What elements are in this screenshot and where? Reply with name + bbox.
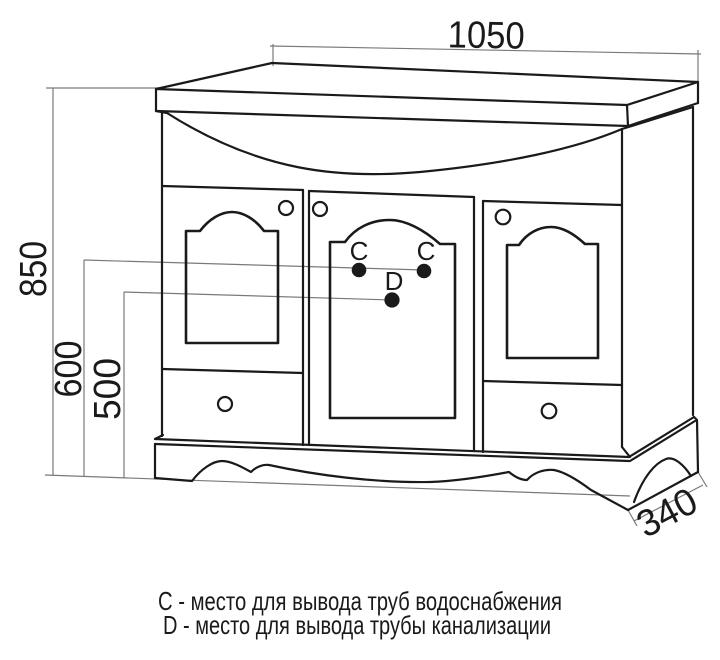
floor-line [45, 475, 630, 496]
drawing-canvas: C C D 1050 850 600 500 340 C - место для… [0, 0, 720, 660]
countertop [156, 63, 698, 126]
vanity-technical-drawing: C C D 1050 850 600 500 340 C - место для… [0, 0, 720, 660]
left-door-panel [186, 212, 278, 343]
plinth-molding-top [155, 439, 629, 457]
right-door-knob [496, 210, 511, 225]
dim-supply-label: 600 [48, 341, 90, 398]
plinth-side-molding-bottom [630, 421, 695, 461]
center-door-knob [313, 202, 327, 216]
left-drawer-knob [218, 397, 232, 411]
dim-width-label: 1050 [447, 14, 525, 57]
dim-drain-label: 500 [87, 358, 129, 420]
left-drawer-top [162, 369, 303, 373]
door-top-left [162, 186, 303, 190]
drain-marker-label: D [385, 266, 404, 296]
dim-height-label: 850 [13, 241, 55, 297]
plinth-back-corner [694, 417, 698, 472]
door-top-center [309, 191, 474, 197]
supply-marker-left-label: C [350, 236, 369, 266]
legend: C - место для вывода труб водоснабжения … [158, 586, 562, 640]
dimension-lines [45, 44, 707, 526]
plinth-side-molding-top [629, 417, 694, 457]
dimension-labels: 1050 850 600 500 340 [13, 14, 705, 546]
plinth-molding-bottom [155, 444, 629, 461]
pipe-markers: C C D [350, 236, 436, 308]
countertop-right-face-bottom [628, 103, 698, 126]
plinth-front-scallop [155, 461, 628, 510]
supply-marker-right-label: C [417, 236, 436, 266]
door-top-right [483, 201, 622, 205]
leader-drain [124, 292, 392, 300]
right-drawer-knob [542, 404, 557, 419]
right-drawer-top [483, 381, 622, 385]
countertop-front-bottom [156, 111, 628, 126]
left-door-knob [279, 201, 293, 215]
knobs [218, 201, 556, 418]
cabinet-body [156, 107, 693, 452]
plinth-bevel-right [622, 447, 630, 457]
leader-supply [84, 260, 424, 270]
door-panels [186, 212, 598, 418]
legend-line-drain: D - место для вывода трубы канализации [163, 610, 551, 640]
countertop-front-right-edge [627, 105, 628, 126]
body-side-top-edge [622, 107, 693, 129]
sink-apron-curve [167, 113, 622, 174]
countertop-top-face [156, 63, 698, 105]
right-door-panel [507, 227, 598, 358]
